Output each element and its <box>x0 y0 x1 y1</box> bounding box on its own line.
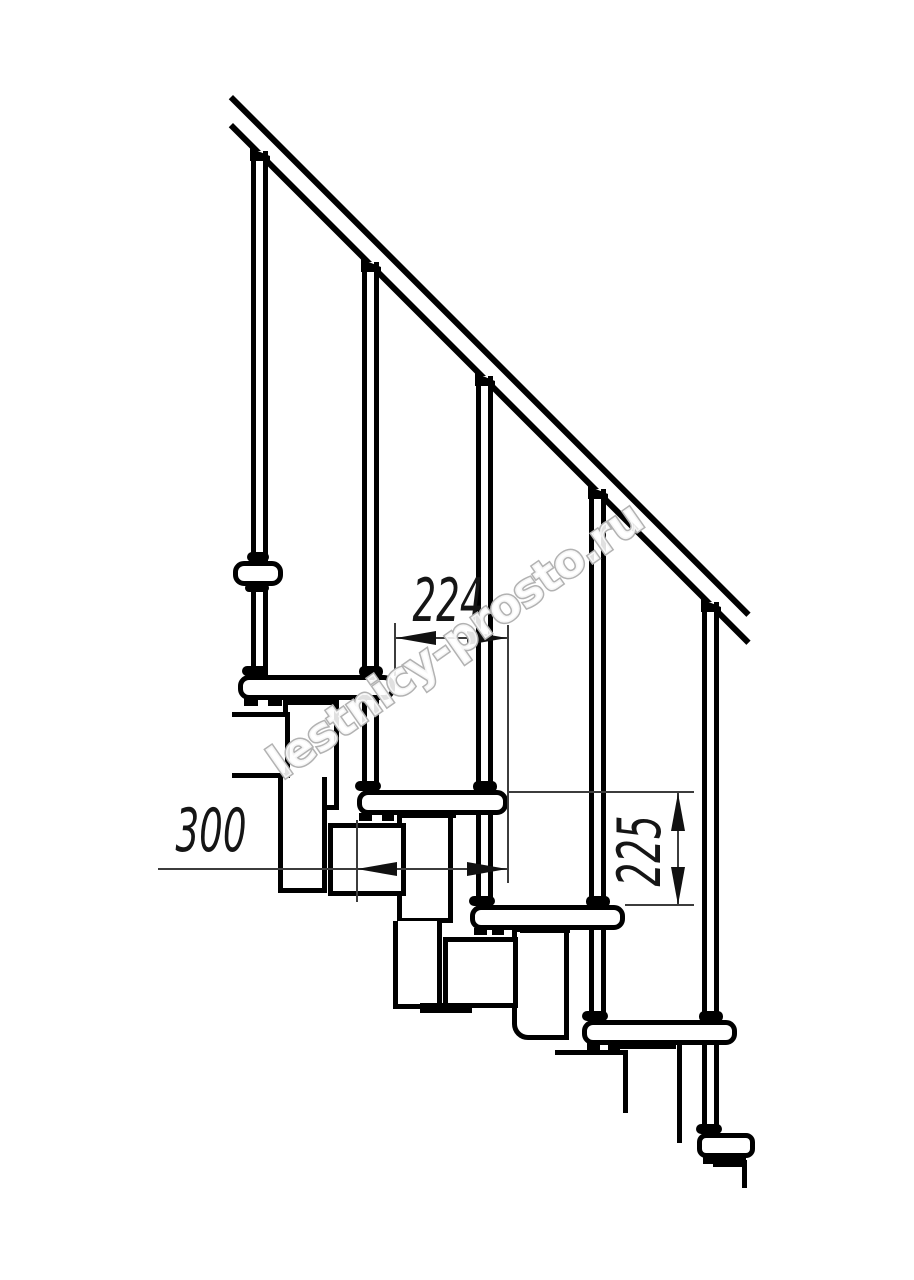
mount-clamp <box>247 552 269 562</box>
dim-224-300-extension-right <box>507 625 509 883</box>
baluster-3-pass-clamp <box>473 781 497 792</box>
baluster-4-foot <box>582 1011 608 1021</box>
baluster-5-foot <box>696 1124 722 1134</box>
platform-cut-line-down <box>742 1160 747 1188</box>
mount-clamp <box>587 1043 600 1051</box>
stringer-riser-2-lower <box>393 921 442 1009</box>
dim-300-arrowhead-right <box>467 862 507 876</box>
platform-shadow <box>703 1155 746 1164</box>
mount-clamp <box>492 928 504 935</box>
stringer-box-2 <box>328 823 406 896</box>
staircase-technical-drawing: 224 300 225 lestnicy-prosto.ru <box>0 0 914 1280</box>
dim-225-label: 225 <box>613 801 667 900</box>
mount-clamp <box>474 928 487 935</box>
mount-clamp <box>608 1043 620 1051</box>
mount-clamp <box>359 813 372 821</box>
dim-225-extension-top <box>508 791 694 793</box>
stringer-foot-bar <box>420 1003 472 1013</box>
stringer-cut-line-left <box>623 1050 628 1113</box>
mount-clamp <box>382 813 394 821</box>
baluster-2-foot <box>355 781 381 791</box>
stringer-box-3 <box>443 937 518 1008</box>
dim-300-arrowhead-left <box>357 862 397 876</box>
tread-2-shadow <box>408 812 456 818</box>
dim-300-line <box>158 868 508 870</box>
mount-clamp <box>268 698 282 706</box>
tread-top-bracket <box>233 561 283 586</box>
tread-3-shadow <box>520 927 570 933</box>
dim-300-extension-left <box>356 820 358 902</box>
baluster-5 <box>702 602 719 1133</box>
mount-clamp <box>245 584 269 592</box>
baluster-1-foot <box>242 666 268 676</box>
stringer-riser-3 <box>512 927 569 1040</box>
tread-4-shadow <box>620 1042 676 1049</box>
baluster-4-pass-clamp <box>586 896 610 907</box>
mount-clamp <box>244 698 258 706</box>
baluster-3-foot <box>469 896 495 906</box>
baluster-5-pass-clamp <box>699 1011 723 1022</box>
baluster-1 <box>251 151 268 675</box>
stringer-cut-line-right <box>677 1042 682 1143</box>
